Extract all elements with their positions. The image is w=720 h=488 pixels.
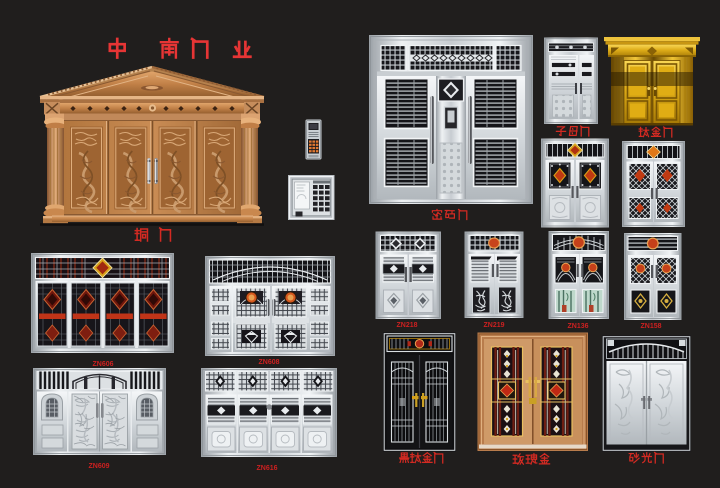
svg-text:ZN218: ZN218 — [396, 322, 417, 329]
svg-text:ZN608: ZN608 — [258, 359, 279, 366]
svg-text:ZN609: ZN609 — [88, 463, 109, 470]
svg-text:ZN616: ZN616 — [256, 465, 277, 472]
svg-text:ZN606: ZN606 — [92, 361, 113, 368]
svg-text:ZN219: ZN219 — [483, 322, 504, 329]
svg-text:ZN158: ZN158 — [640, 323, 661, 330]
svg-text:ZN136: ZN136 — [567, 323, 588, 330]
